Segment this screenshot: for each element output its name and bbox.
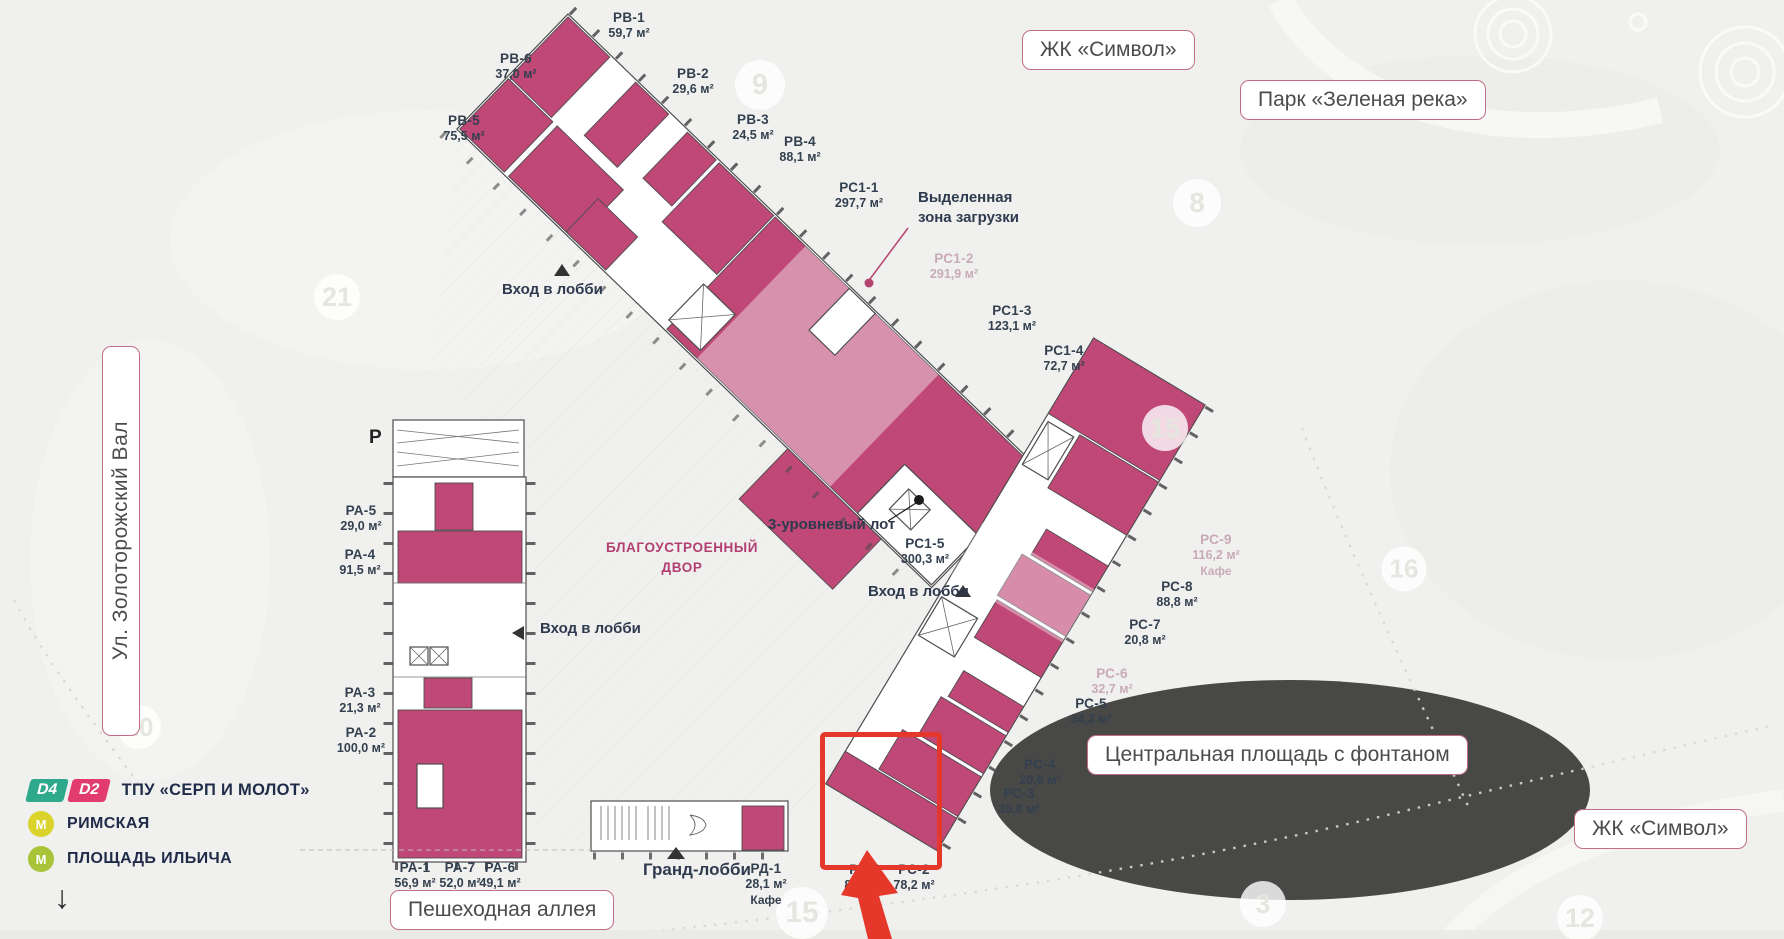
landmark-central-square: Центральная площадь с фонтаном: [1087, 735, 1468, 775]
d2-line-badge: D2: [67, 779, 111, 802]
legend-metro-row-2: М ПЛОЩАДЬ ИЛЬИЧА: [28, 846, 310, 872]
transport-legend: D4 D2 ТПУ «СЕРП И МОЛОТ» М РИМСКАЯ М ПЛО…: [28, 779, 310, 913]
hub-title: ТПУ «СЕРП И МОЛОТ»: [122, 781, 310, 800]
map-number-12: 12: [1557, 895, 1603, 939]
parking-label: Р: [369, 427, 382, 449]
map-number-8: 8: [1173, 179, 1221, 227]
unit-label-РС-6: РС-632,7 м²: [1091, 666, 1132, 698]
street-name: Ул. Золоторожский Вал: [109, 421, 133, 660]
d4-line-badge: D4: [25, 779, 69, 802]
unit-label-РА-2: РА-2100,0 м²: [337, 725, 385, 757]
map-number-9: 9: [735, 60, 785, 110]
annotation-three-level-lot: 3-уровневый лот: [768, 515, 895, 535]
unit-label-РС-8: РС-888,8 м²: [1156, 579, 1197, 611]
unit-label-РС1-5: РС1-5300,3 м²: [901, 536, 949, 568]
metro-station-rimskaya: РИМСКАЯ: [67, 815, 150, 833]
lobby-entrance-left: Вход в лобби: [540, 619, 641, 639]
unit-label-РС1-1: РС1-1297,7 м²: [835, 180, 883, 212]
map-number-3: 3: [1240, 881, 1286, 927]
unit-label-РС1-3: РС1-3123,1 м²: [988, 303, 1036, 335]
map-number-15: 15: [1142, 405, 1188, 451]
legend-metro-row-1: М РИМСКАЯ: [28, 811, 310, 837]
unit-label-РА-4: РА-491,5 м²: [339, 547, 380, 579]
grand-lobby-label: Гранд-лобби: [643, 859, 751, 882]
unit-label-РС-4: РС-420,6 м²: [1019, 757, 1060, 789]
unit-label-РА-5: РА-529,0 м²: [340, 503, 381, 535]
unit-label-РА-1: РА-156,9 м²: [394, 860, 435, 892]
legend-hub-row: D4 D2 ТПУ «СЕРП И МОЛОТ»: [28, 779, 310, 802]
landmark-street: Ул. Золоторожский Вал: [102, 346, 140, 736]
annotation-loading-zone: Выделенная зона загрузки: [918, 188, 1019, 229]
landmark-zk-symbol-bottom: ЖК «Символ»: [1574, 809, 1747, 849]
lobby-entrance-right: Вход в лобби: [868, 582, 969, 602]
courtyard-label: БЛАГОУСТРОЕННЫЙ ДВОР: [606, 538, 758, 579]
site-plan-page: РВ-159,7 м²РВ-229,6 м²РВ-324,5 м²РВ-488,…: [0, 0, 1784, 939]
unit-label-РА-7: РА-752,0 м²: [439, 860, 480, 892]
landmark-pedestrian-alley: Пешеходная аллея: [390, 890, 614, 930]
unit-label-РВ-4: РВ-488,1 м²: [779, 134, 820, 166]
unit-label-РС-7: РС-720,8 м²: [1124, 617, 1165, 649]
unit-label-РС1-4: РС1-472,7 м²: [1043, 343, 1084, 375]
metro-icon-rimskaya: М: [28, 811, 54, 837]
wing-left: [393, 420, 526, 862]
highlighted-unit-frame: [820, 732, 942, 870]
unit-label-РВ-2: РВ-229,6 м²: [672, 66, 713, 98]
unit-label-РС-3: РС-335,8 м²: [998, 786, 1039, 818]
unit-label-РВ-3: РВ-324,5 м²: [732, 112, 773, 144]
unit-label-РА-6: РА-649,1 м²: [479, 860, 520, 892]
unit-label-РС-9: РС-9116,2 м²Кафе: [1192, 532, 1239, 578]
unit-label-РС-5: РС-534,3 м²: [1070, 696, 1111, 728]
unit-label-РВ-1: РВ-159,7 м²: [608, 10, 649, 42]
metro-station-ploschad-ilicha: ПЛОЩАДЬ ИЛЬИЧА: [67, 850, 232, 868]
unit-label-РД-1: РД-128,1 м²Кафе: [745, 861, 786, 907]
map-number-16: 16: [1382, 547, 1427, 592]
unit-label-РВ-6: РВ-637,0 м²: [495, 51, 536, 83]
unit-label-РВ-5: РВ-575,5 м²: [443, 113, 484, 145]
unit-label-РА-3: РА-321,3 м²: [339, 685, 380, 717]
landmark-park: Парк «Зеленая река»: [1240, 80, 1486, 120]
metro-icon-ploschad-ilicha: М: [28, 846, 54, 872]
unit-label-РС1-2: РС1-2291,9 м²: [930, 251, 978, 283]
direction-down-arrow: ↓: [54, 881, 310, 913]
map-number-21: 21: [314, 274, 360, 320]
lobby-entrance-top: Вход в лобби: [502, 280, 603, 300]
landmark-zk-symbol-top: ЖК «Символ»: [1022, 30, 1195, 70]
